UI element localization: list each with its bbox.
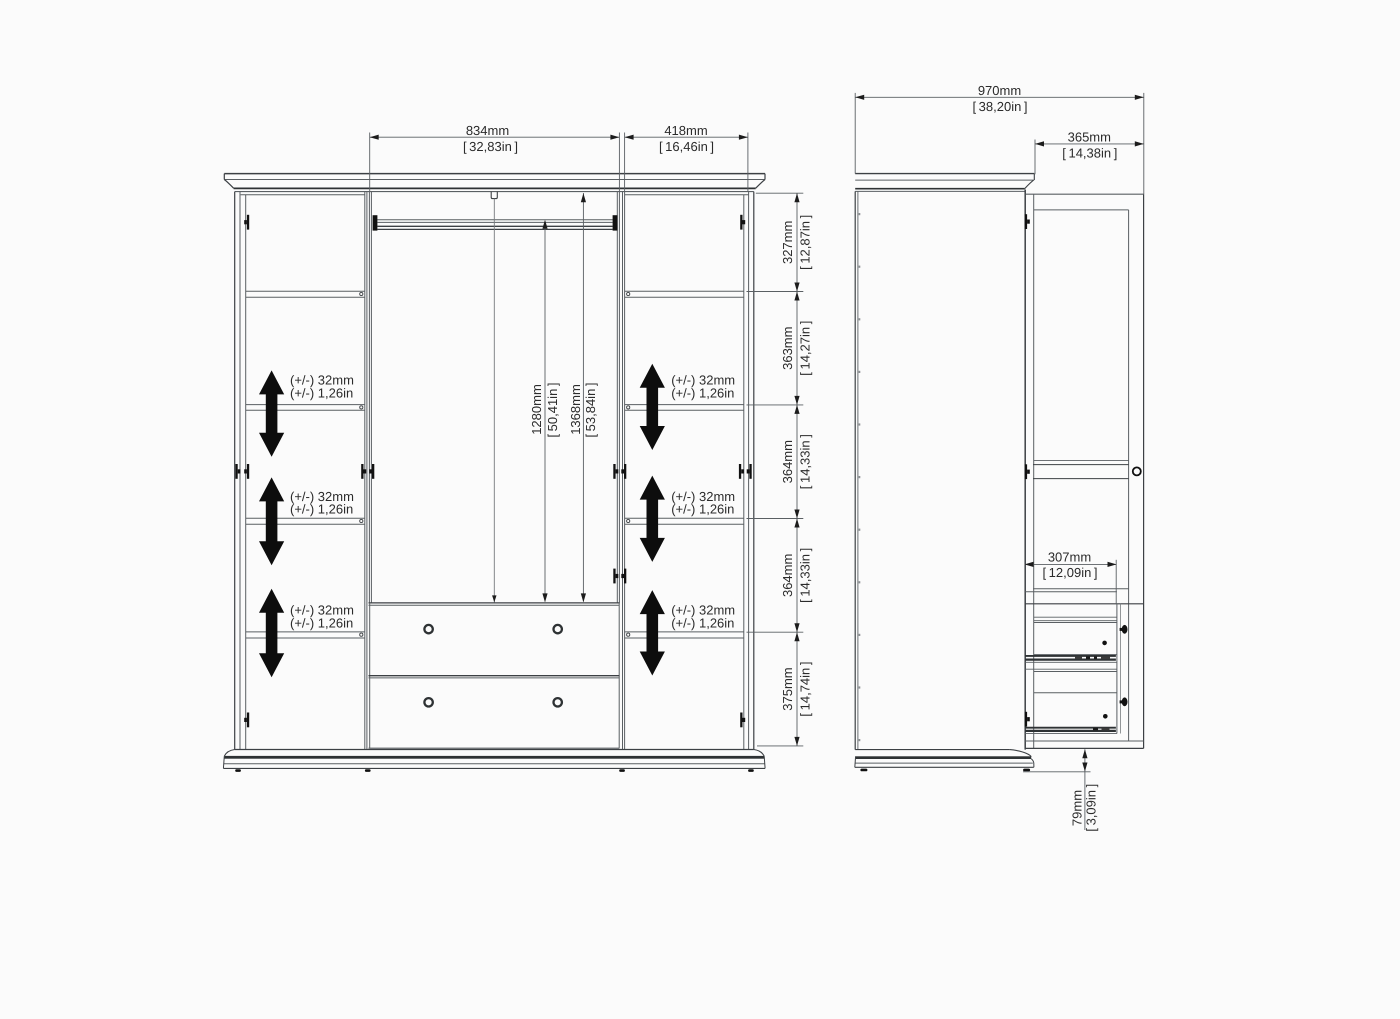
- svg-text:(+/-) 1,26in: (+/-) 1,26in: [290, 385, 353, 400]
- svg-text:[ 14,38in ]: [ 14,38in ]: [1062, 146, 1117, 161]
- svg-text:[ 53,84in ]: [ 53,84in ]: [583, 382, 598, 437]
- svg-text:[ 12,87in ]: [ 12,87in ]: [798, 215, 813, 270]
- svg-text:(+/-) 1,26in: (+/-) 1,26in: [290, 502, 353, 517]
- svg-text:375mm: 375mm: [780, 667, 795, 710]
- svg-text:363mm: 363mm: [780, 327, 795, 370]
- svg-text:365mm: 365mm: [1068, 130, 1111, 145]
- svg-text:418mm: 418mm: [664, 123, 707, 138]
- svg-text:[ 14,33in ]: [ 14,33in ]: [798, 434, 813, 489]
- svg-text:[ 3,09in ]: [ 3,09in ]: [1084, 784, 1099, 832]
- svg-text:(+/-) 1,26in: (+/-) 1,26in: [290, 615, 353, 630]
- svg-text:1368mm: 1368mm: [568, 384, 583, 435]
- svg-text:[ 50,41in ]: [ 50,41in ]: [545, 382, 560, 437]
- svg-text:[ 14,74in ]: [ 14,74in ]: [798, 662, 813, 717]
- svg-text:970mm: 970mm: [978, 83, 1021, 98]
- svg-text:79mm: 79mm: [1070, 790, 1085, 826]
- svg-text:(+/-) 1,26in: (+/-) 1,26in: [671, 385, 734, 400]
- svg-text:364mm: 364mm: [780, 440, 795, 483]
- svg-text:1280mm: 1280mm: [529, 384, 544, 435]
- svg-text:(+/-) 1,26in: (+/-) 1,26in: [671, 615, 734, 630]
- svg-text:327mm: 327mm: [780, 221, 795, 264]
- svg-text:[ 14,27in ]: [ 14,27in ]: [798, 321, 813, 376]
- svg-text:[ 32,83in ]: [ 32,83in ]: [463, 139, 518, 154]
- svg-text:[ 16,46in ]: [ 16,46in ]: [659, 139, 714, 154]
- svg-text:(+/-) 1,26in: (+/-) 1,26in: [671, 502, 734, 517]
- svg-text:364mm: 364mm: [780, 554, 795, 597]
- svg-text:834mm: 834mm: [466, 123, 509, 138]
- svg-text:[ 14,33in ]: [ 14,33in ]: [798, 548, 813, 603]
- svg-text:307mm: 307mm: [1048, 549, 1091, 564]
- svg-text:[ 12,09in ]: [ 12,09in ]: [1042, 565, 1097, 580]
- svg-text:[ 38,20in ]: [ 38,20in ]: [972, 99, 1027, 114]
